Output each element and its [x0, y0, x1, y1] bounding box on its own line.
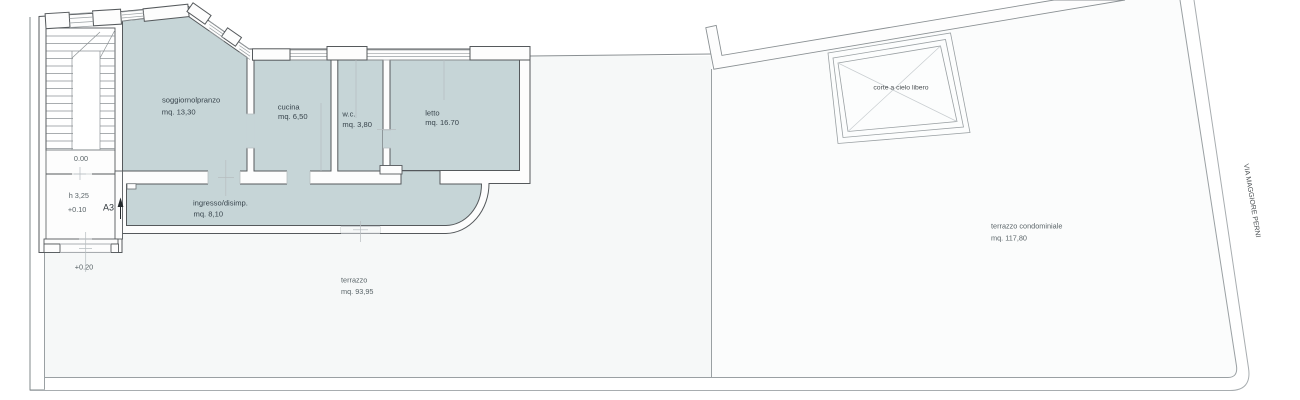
svg-text:mq. 16.70: mq. 16.70: [425, 118, 459, 127]
svg-text:mq. 13,30: mq. 13,30: [162, 107, 196, 116]
svg-text:mq. 93,95: mq. 93,95: [341, 287, 373, 296]
svg-text:letto: letto: [425, 108, 439, 117]
svg-text:w.c.: w.c.: [341, 110, 355, 119]
svg-text:corte a cielo libero: corte a cielo libero: [873, 85, 928, 92]
svg-text:+0.20: +0.20: [75, 262, 93, 271]
svg-text:mq. 8,10: mq. 8,10: [194, 210, 224, 219]
svg-text:mq. 3,80: mq. 3,80: [342, 120, 372, 129]
svg-text:+0.10: +0.10: [68, 205, 86, 214]
svg-text:soggiornolpranzo: soggiornolpranzo: [162, 96, 220, 105]
svg-text:cucina: cucina: [278, 102, 301, 111]
svg-text:0.00: 0.00: [74, 154, 88, 163]
svg-text:ingresso/disimp.: ingresso/disimp.: [193, 199, 248, 208]
svg-text:terrazzo condominiale: terrazzo condominiale: [991, 221, 1062, 230]
svg-text:A3: A3: [103, 203, 114, 213]
svg-text:h 3,25: h 3,25: [69, 191, 89, 200]
svg-text:terrazzo: terrazzo: [341, 276, 367, 285]
svg-text:mq. 117,80: mq. 117,80: [991, 234, 1027, 243]
svg-text:mq. 6,50: mq. 6,50: [278, 112, 308, 121]
